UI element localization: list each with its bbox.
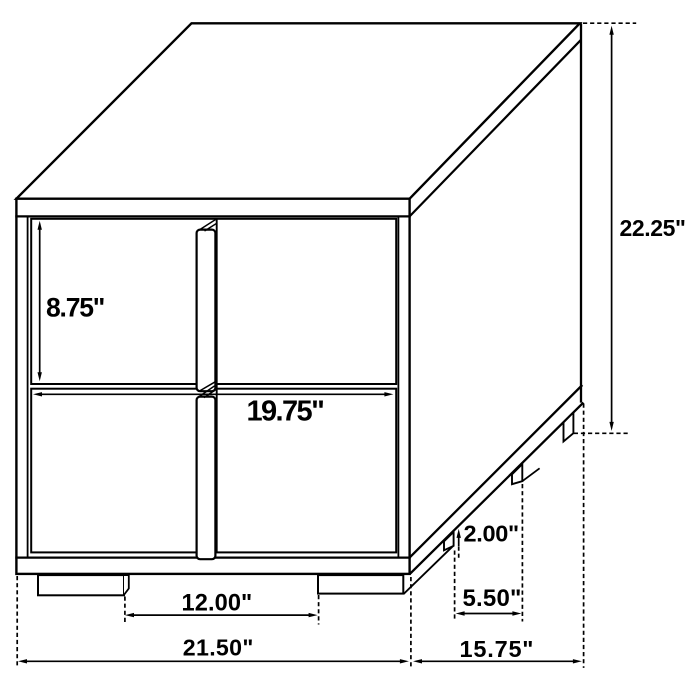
svg-text:2.00": 2.00" (464, 521, 519, 547)
svg-text:19.75": 19.75" (247, 396, 324, 428)
svg-text:15.75": 15.75" (460, 636, 535, 662)
svg-text:8.75": 8.75" (46, 292, 104, 322)
svg-text:22.25": 22.25" (620, 215, 686, 241)
svg-text:12.00": 12.00" (182, 591, 253, 617)
svg-text:5.50": 5.50" (463, 585, 522, 612)
svg-text:21.50": 21.50" (183, 635, 254, 661)
